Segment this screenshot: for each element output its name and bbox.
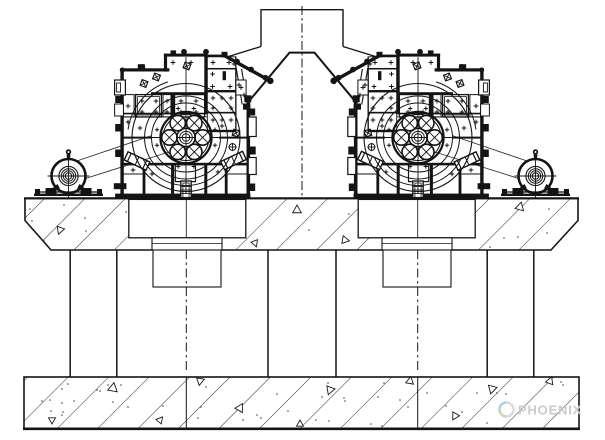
svg-text:PHOENIX: PHOENIX xyxy=(518,403,582,418)
